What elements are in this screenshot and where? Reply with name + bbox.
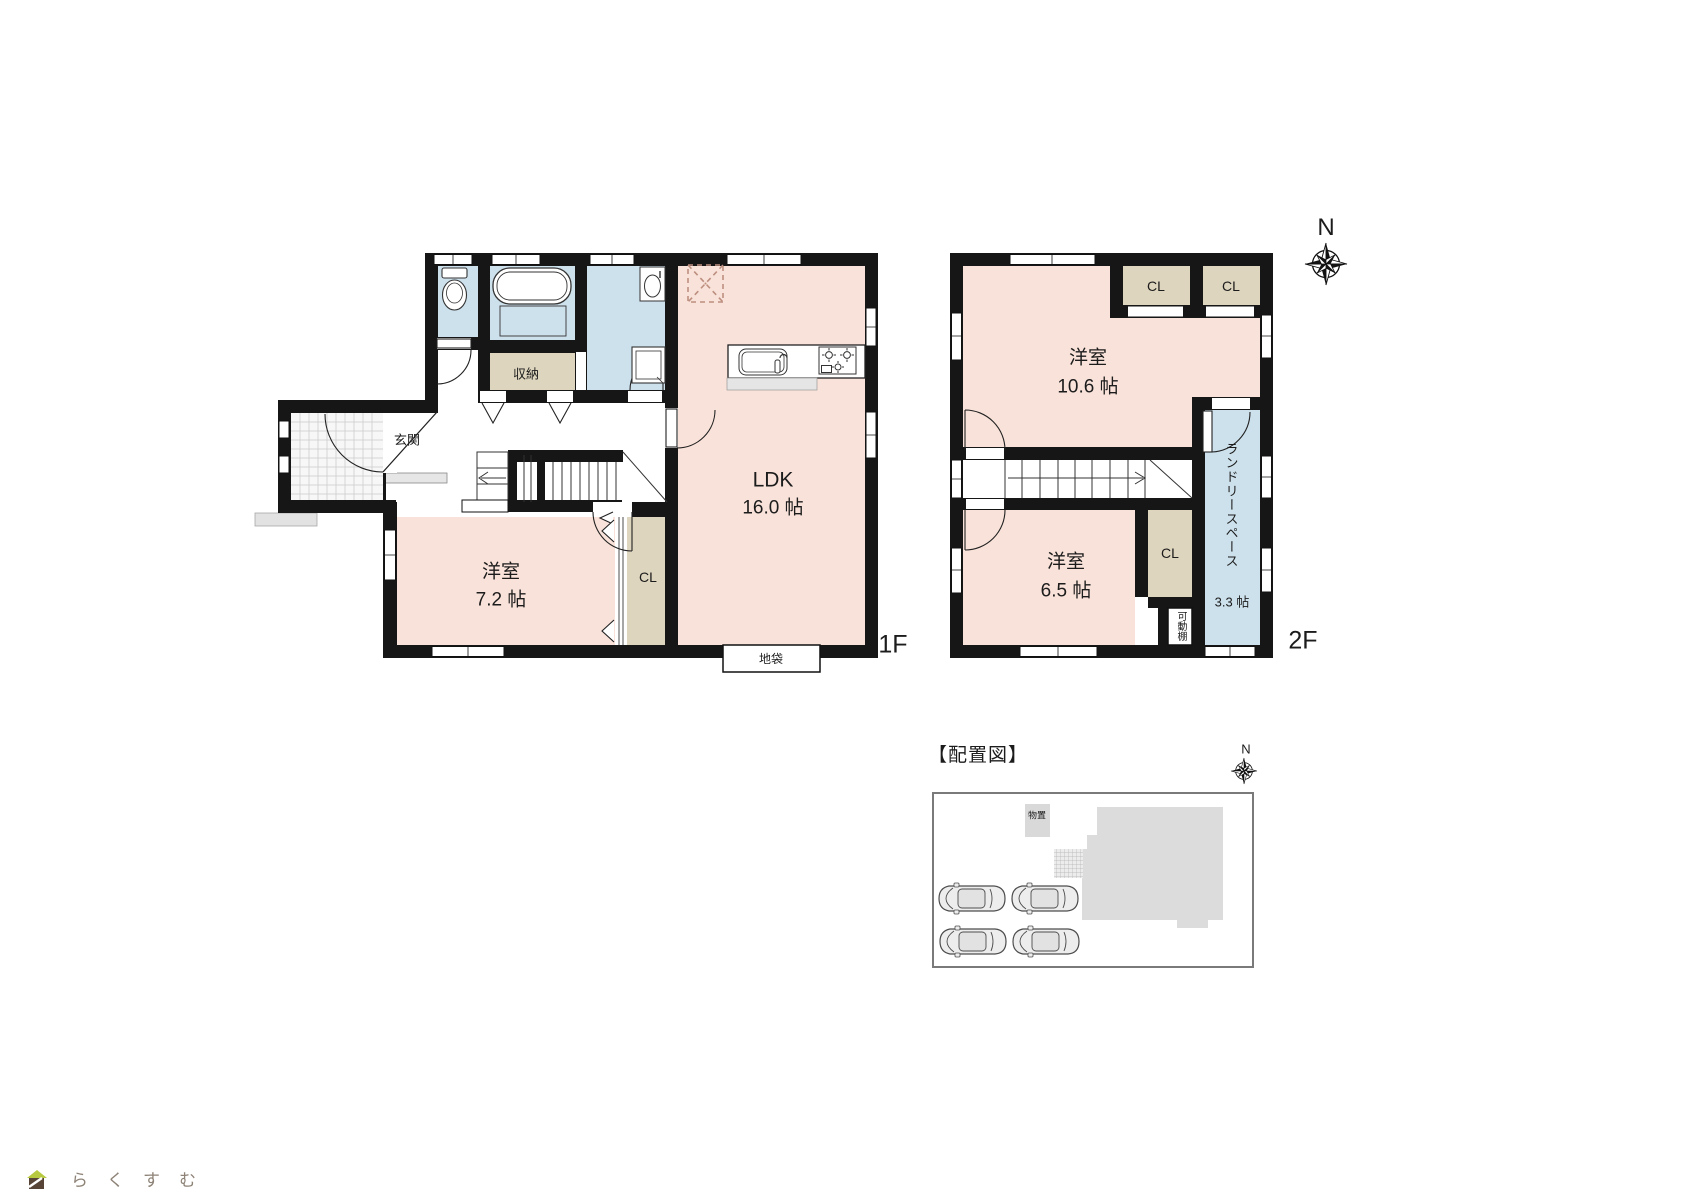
washing-machine-icon bbox=[632, 347, 665, 383]
laundry-size-label: 3.3 帖 bbox=[1215, 596, 1250, 609]
compass-rose-small-icon bbox=[1231, 758, 1257, 784]
entrance-label: 玄関 bbox=[394, 434, 420, 447]
room1f-name-label: 洋室 bbox=[482, 563, 520, 582]
shed-label: 物置 bbox=[1028, 812, 1046, 821]
floorplan-graphics bbox=[0, 0, 1684, 1190]
compass-north-small-label: N bbox=[1241, 743, 1250, 756]
room2f-small-name-label: 洋室 bbox=[1047, 553, 1085, 572]
ldk-size-label: 16.0 帖 bbox=[742, 499, 803, 518]
car-icon bbox=[1013, 926, 1079, 957]
closet2f-c-label: CL bbox=[1161, 546, 1179, 560]
floor-cabinet-label: 地袋 bbox=[759, 653, 783, 665]
logo-house-icon bbox=[27, 1170, 47, 1189]
house-footprint bbox=[1082, 807, 1223, 928]
room2f-large-name-label: 洋室 bbox=[1069, 349, 1107, 368]
floor1-label: 1F bbox=[878, 633, 907, 658]
stove-icon bbox=[819, 347, 856, 374]
compass-north-large-label: N bbox=[1317, 216, 1334, 240]
logo-text: らくすむ bbox=[71, 1172, 215, 1189]
shed-box bbox=[1025, 804, 1050, 837]
laundry-name-label: ランドリースペース bbox=[1225, 442, 1238, 568]
room1f-size-label: 7.2 帖 bbox=[476, 591, 527, 610]
closet2f-b-label: CL bbox=[1222, 279, 1240, 293]
terrace-hatch bbox=[1054, 849, 1083, 878]
floor1-room-fills bbox=[397, 266, 865, 645]
room2f-small-size-label: 6.5 帖 bbox=[1041, 582, 1092, 601]
floor2-stairs bbox=[1005, 460, 1192, 498]
washbasin-icon bbox=[640, 267, 665, 301]
car-icon bbox=[1012, 883, 1078, 914]
kitchen-sink-icon bbox=[739, 349, 787, 375]
movable-shelf-label: 可動棚 bbox=[1175, 611, 1185, 641]
site-plan bbox=[933, 793, 1253, 967]
floor1-plan bbox=[255, 253, 878, 672]
toilet-icon bbox=[442, 268, 467, 310]
floor2-label: 2F bbox=[1288, 629, 1317, 654]
site-plan-title: 【配置図】 bbox=[928, 746, 1028, 765]
car-icon bbox=[940, 926, 1006, 957]
ldk-name-label: LDK bbox=[753, 470, 794, 491]
floorplan-page: 玄関 収納 洋室 7.2 帖 CL LDK 16.0 帖 地袋 1F 洋室 10… bbox=[0, 0, 1684, 1190]
room2f-large-size-label: 10.6 帖 bbox=[1057, 378, 1118, 397]
car-icon bbox=[939, 883, 1005, 914]
closet2f-a-label: CL bbox=[1147, 279, 1165, 293]
storage-label: 収納 bbox=[513, 368, 539, 381]
closet1f-label: CL bbox=[639, 570, 657, 584]
compass-rose-large-icon bbox=[1305, 243, 1347, 285]
